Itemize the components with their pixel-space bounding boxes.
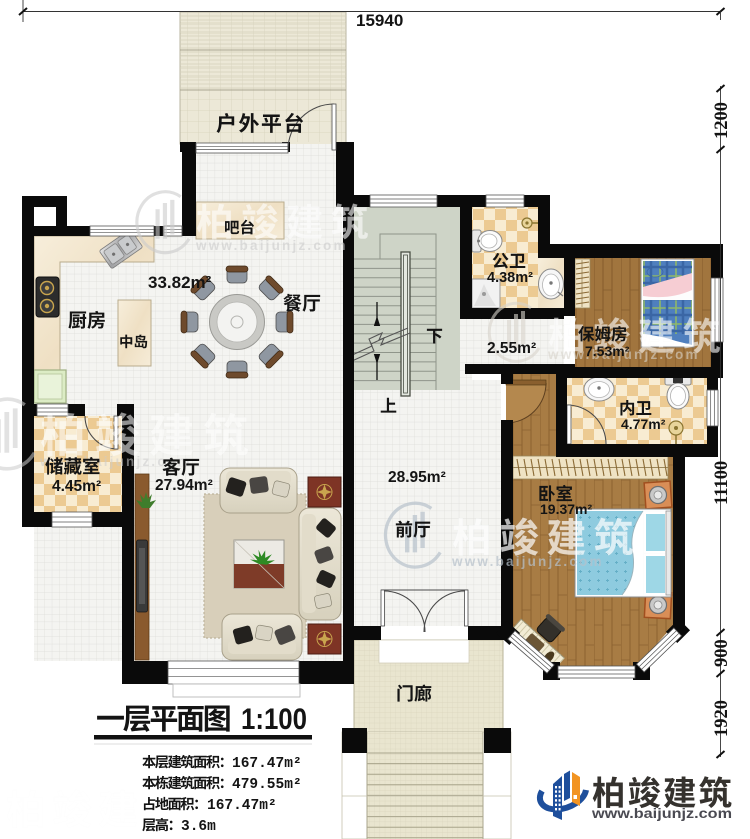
- svg-text:900: 900: [712, 639, 732, 667]
- svg-text:11100: 11100: [712, 461, 732, 505]
- svg-text:4.38m²: 4.38m²: [487, 270, 533, 286]
- svg-text:167.47m²: 167.47m²: [232, 756, 302, 772]
- svg-text:167.47m²: 167.47m²: [207, 798, 277, 814]
- svg-text:2.55m²: 2.55m²: [487, 340, 536, 357]
- svg-text:33.82m²: 33.82m²: [148, 273, 212, 292]
- svg-text:www.baijunjz.com: www.baijunjz.com: [451, 554, 604, 569]
- svg-text:4.45m²: 4.45m²: [52, 478, 101, 495]
- svg-text:27.94m²: 27.94m²: [155, 477, 213, 494]
- svg-text:28.95m²: 28.95m²: [388, 469, 446, 486]
- svg-text:3.6m: 3.6m: [181, 819, 216, 835]
- svg-text:19.37m²: 19.37m²: [540, 501, 592, 517]
- svg-text:15940: 15940: [356, 11, 403, 30]
- svg-text:1200: 1200: [712, 102, 732, 139]
- svg-text:www.baijunjz.com: www.baijunjz.com: [591, 806, 732, 821]
- svg-text:1:100: 1:100: [241, 703, 307, 736]
- svg-text:1920: 1920: [712, 700, 732, 737]
- svg-text:479.55m²: 479.55m²: [232, 777, 302, 793]
- svg-text:4.77m²: 4.77m²: [621, 416, 666, 432]
- svg-text:7.53m²: 7.53m²: [585, 343, 630, 359]
- svg-text:www.baijunjz.com: www.baijunjz.com: [195, 238, 348, 253]
